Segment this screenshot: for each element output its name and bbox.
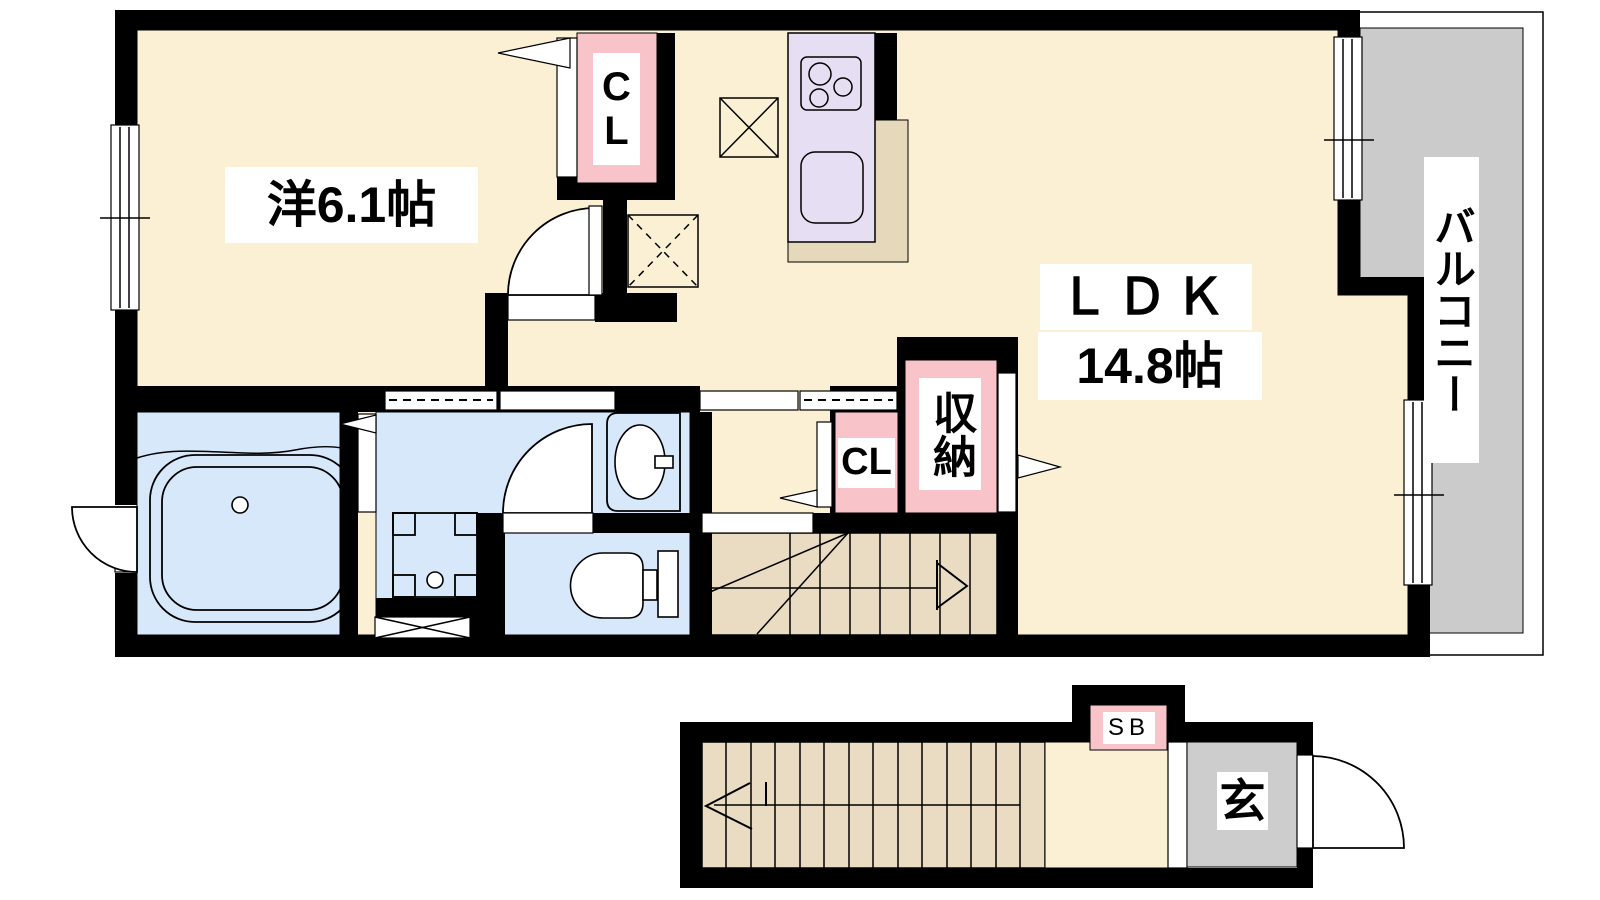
genkan-step bbox=[1168, 742, 1187, 868]
kitchen-sink bbox=[801, 152, 863, 223]
refrigerator-space-icon bbox=[720, 98, 778, 157]
appliance-space-dashed-icon bbox=[628, 215, 698, 287]
label-entrance: 玄 bbox=[1217, 772, 1268, 830]
floor1-hall bbox=[1045, 742, 1168, 868]
window-bathroom-vent bbox=[375, 617, 470, 638]
bathroom-floor bbox=[137, 412, 340, 635]
label-storage: 収納 bbox=[919, 378, 981, 490]
label-western-room: 洋6.1帖 bbox=[225, 167, 478, 243]
toilet bbox=[571, 551, 679, 618]
label-closet-lower: CL bbox=[838, 438, 895, 488]
door-entrance bbox=[1297, 755, 1404, 848]
label-shoe-box: SB bbox=[1103, 712, 1155, 744]
label-ldk-size: 14.8帖 bbox=[1038, 332, 1262, 400]
label-balcony: バルコニー bbox=[1424, 157, 1479, 463]
label-ldk-name: ＬＤＫ bbox=[1040, 264, 1252, 330]
floor-plan-drawing bbox=[0, 0, 1600, 900]
door-bathroom-exterior bbox=[72, 507, 137, 572]
floor1-plan bbox=[680, 685, 1404, 888]
label-closet-upper: CL bbox=[593, 53, 640, 165]
kitchen-wall-stub bbox=[875, 33, 897, 120]
floor-plan-page: 洋6.1帖 ＬＤＫ 14.8帖 CL CL 収納 バルコニー SB 玄 bbox=[0, 0, 1600, 900]
